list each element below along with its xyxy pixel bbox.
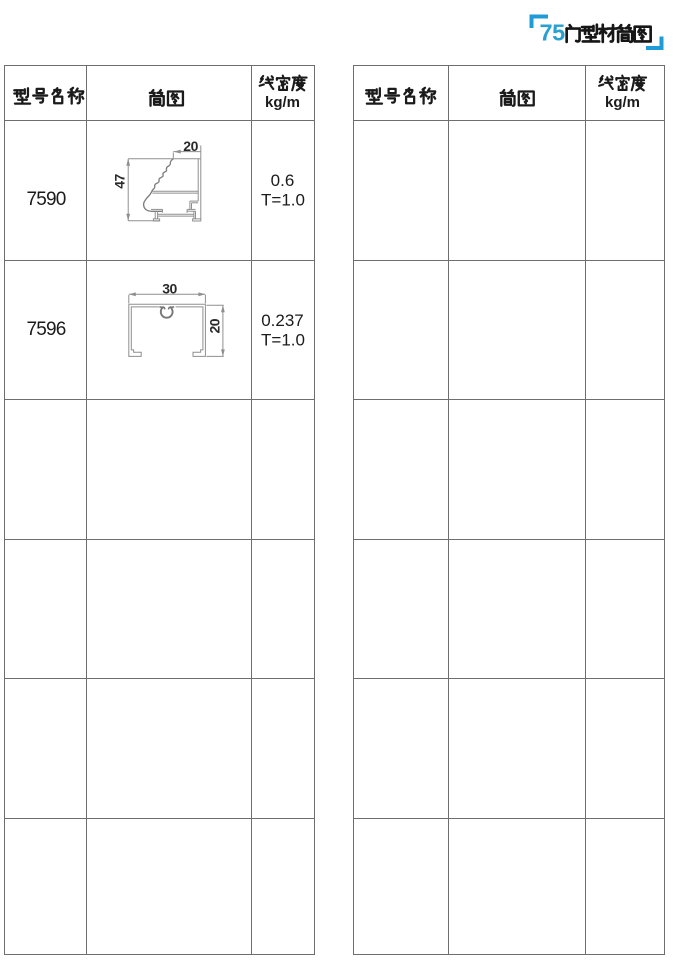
svg-text:47: 47 (111, 174, 127, 189)
svg-text:0.237: 0.237 (261, 311, 304, 330)
svg-text:T=1.0: T=1.0 (261, 191, 305, 210)
svg-text:kg/m: kg/m (605, 94, 640, 111)
svg-text:7590: 7590 (26, 189, 65, 210)
svg-text:0.6: 0.6 (271, 171, 295, 190)
svg-text:7596: 7596 (26, 319, 65, 340)
svg-text:30: 30 (162, 280, 177, 296)
svg-text:20: 20 (183, 138, 198, 154)
svg-text:T=1.0: T=1.0 (261, 330, 305, 349)
svg-text:kg/m: kg/m (265, 94, 300, 111)
svg-text:75: 75 (540, 20, 566, 46)
svg-text:20: 20 (207, 318, 223, 333)
